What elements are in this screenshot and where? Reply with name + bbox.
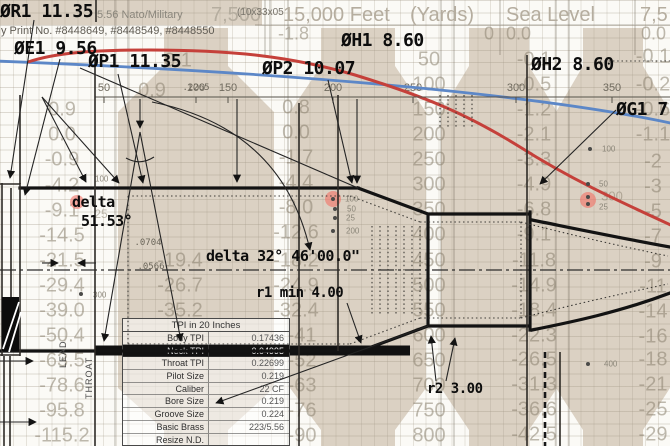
dim-label-h1: ØH1 8.60 bbox=[341, 30, 424, 51]
dim-label-p2: ØP2 10.07 bbox=[262, 58, 355, 79]
angle-arc bbox=[152, 102, 310, 250]
ruler-line bbox=[95, 97, 670, 103]
r2-leader bbox=[446, 338, 455, 381]
dim-label-p1: ØP1 11.35 bbox=[88, 51, 181, 72]
thread-dots bbox=[372, 95, 472, 316]
angle-arc-small bbox=[126, 157, 154, 162]
dim-label-r2: r2 3.00 bbox=[427, 381, 483, 397]
bullet-ogive bbox=[532, 220, 670, 330]
leader-line bbox=[328, 80, 352, 183]
shoulder-extension bbox=[80, 68, 358, 188]
dim-label-h2: ØH2 8.60 bbox=[531, 54, 614, 75]
leader-line bbox=[42, 97, 119, 183]
r1-leader bbox=[347, 303, 361, 343]
lead-label: LEAD bbox=[58, 340, 68, 368]
throat-angle-line bbox=[140, 132, 181, 341]
drawing-canvas: -1.800.00.00.90.0-0.9-4.2-9.1-14.5-21.5-… bbox=[0, 0, 670, 446]
dim-label-delta2: delta 32° 46'00.0" bbox=[206, 247, 360, 265]
dim-label-e1: ØE1 9.56 bbox=[14, 38, 97, 59]
dim-label-delta1: delta bbox=[72, 193, 115, 211]
r2-leader bbox=[431, 336, 436, 381]
dim-label-g1: ØG1 7 bbox=[616, 99, 668, 120]
g1-leader bbox=[540, 110, 616, 184]
shoulder-extension bbox=[216, 326, 428, 403]
leader-line bbox=[25, 59, 60, 195]
dim-label-delta1-value: 51.53° bbox=[81, 212, 132, 230]
throat-label: THROAT bbox=[84, 357, 94, 399]
dim-label-r1: ØR1 11.35 bbox=[0, 1, 93, 22]
dim-label-r1min: r1 min 4.00 bbox=[256, 285, 343, 301]
throat-angle-line bbox=[104, 132, 140, 341]
